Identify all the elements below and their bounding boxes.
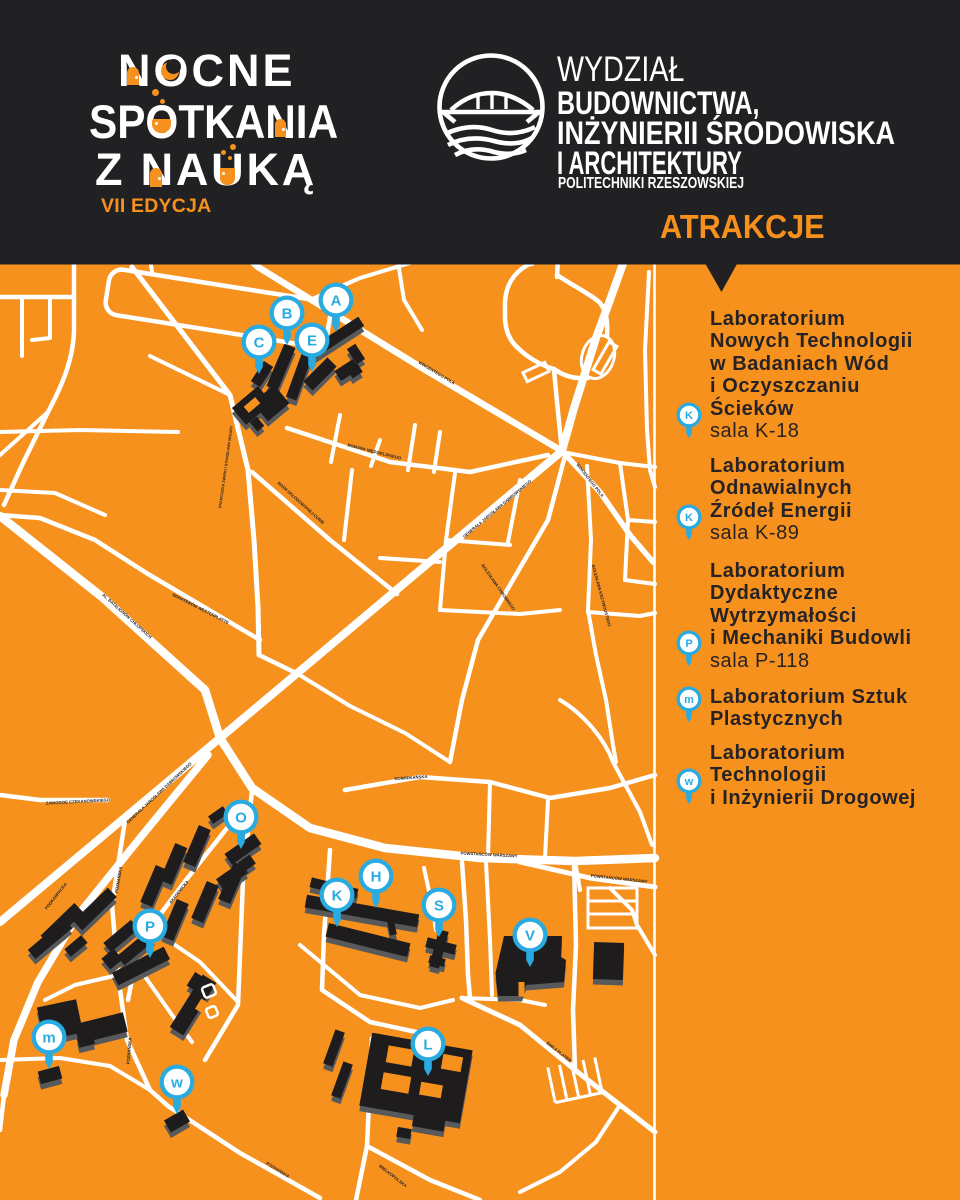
svg-text:m: m (684, 694, 694, 706)
svg-text:w: w (684, 776, 694, 788)
svg-text:A: A (331, 293, 342, 310)
svg-text:m: m (42, 1030, 55, 1047)
svg-text:K: K (685, 410, 693, 422)
svg-text:K: K (685, 512, 693, 524)
svg-text:K: K (332, 888, 343, 905)
svg-text:P: P (145, 919, 155, 936)
svg-text:P: P (685, 638, 692, 650)
svg-text:w: w (170, 1075, 183, 1092)
svg-text:L: L (423, 1037, 432, 1054)
svg-text:C: C (254, 335, 265, 352)
svg-text:E: E (307, 333, 317, 350)
svg-text:H: H (371, 869, 382, 886)
svg-text:S: S (434, 898, 444, 915)
svg-text:B: B (282, 306, 293, 323)
svg-text:V: V (525, 928, 535, 945)
svg-text:O: O (235, 810, 247, 827)
